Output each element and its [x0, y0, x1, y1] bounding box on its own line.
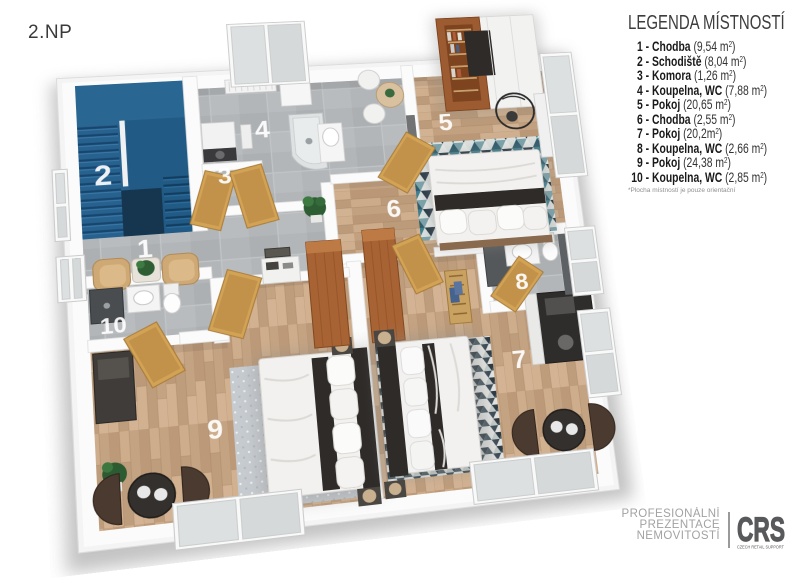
svg-text:9: 9 [206, 415, 224, 445]
svg-text:3: 3 [217, 164, 233, 190]
svg-text:4: 4 [254, 117, 271, 144]
svg-text:CZECH RETAIL SUPPORT: CZECH RETAIL SUPPORT [737, 545, 784, 551]
svg-text:2: 2 [93, 160, 113, 193]
svg-text:1: 1 [136, 235, 153, 263]
svg-text:CRS: CRS [737, 511, 785, 549]
svg-text:10: 10 [99, 312, 127, 339]
svg-text:5: 5 [437, 110, 454, 136]
svg-text:6: 6 [385, 196, 402, 223]
